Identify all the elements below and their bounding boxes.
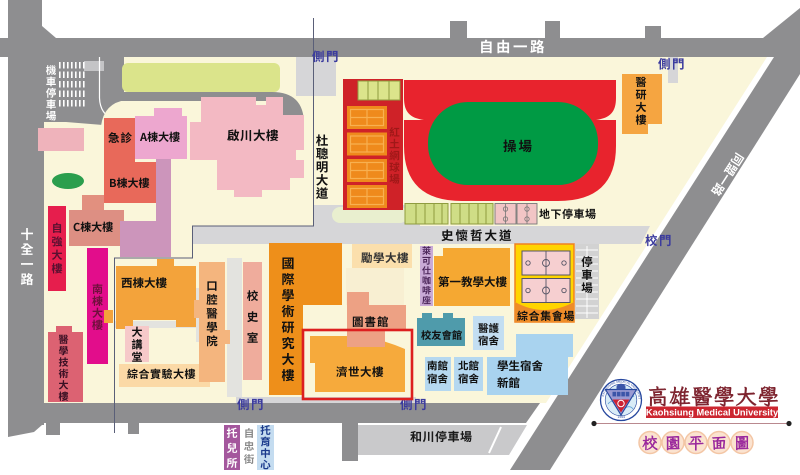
svg-text:Kaohsiung Medical University: Kaohsiung Medical University	[646, 408, 779, 418]
